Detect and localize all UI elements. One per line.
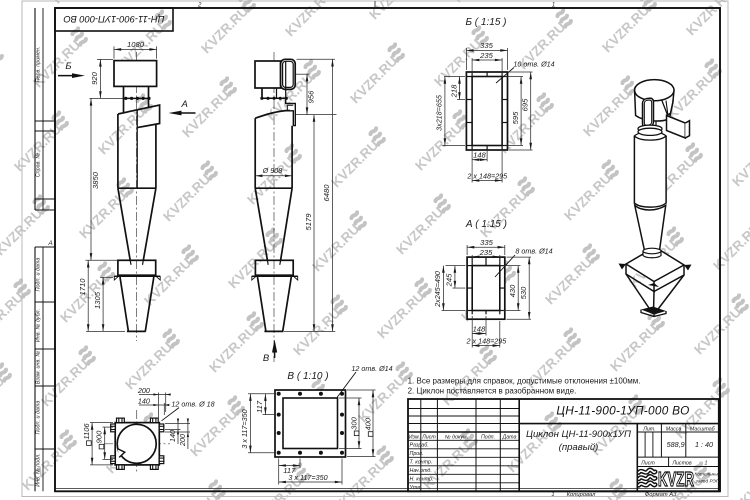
svg-text:3 х 117=350: 3 х 117=350 [288, 473, 327, 482]
svg-text:2х245=490: 2х245=490 [433, 271, 442, 308]
svg-text:Формат А3: Формат А3 [645, 492, 677, 498]
svg-text:3850: 3850 [91, 171, 100, 189]
svg-text:1: 1 [705, 460, 708, 466]
svg-text:1. Все размеры для справок, до: 1. Все размеры для справок, допустимые о… [408, 377, 641, 386]
svg-text:335: 335 [480, 41, 493, 50]
svg-text:А: А [47, 240, 52, 247]
svg-text:400: 400 [364, 417, 373, 430]
svg-text:8 отв. Ø14: 8 отв. Ø14 [515, 246, 552, 255]
svg-text:Лит.: Лит. [642, 427, 655, 433]
svg-text:Масса: Масса [666, 427, 682, 433]
svg-text:Лист: Лист [640, 460, 655, 466]
svg-text:2: 2 [197, 1, 202, 8]
svg-text:Копировал: Копировал [567, 492, 597, 498]
svg-text:Инв. № подл.: Инв. № подл. [35, 453, 41, 486]
svg-text:117: 117 [255, 400, 264, 413]
svg-text:695: 695 [521, 98, 530, 111]
svg-text:Листов: Листов [671, 460, 692, 466]
svg-text:Б: Б [65, 61, 71, 72]
svg-text:Б ( 1:15 ): Б ( 1:15 ) [466, 17, 507, 28]
svg-text:200: 200 [137, 386, 150, 395]
svg-text:В ( 1:10 ): В ( 1:10 ) [287, 371, 328, 382]
svg-text:Изм.: Изм. [409, 434, 420, 440]
svg-text:148: 148 [473, 151, 486, 160]
svg-text:Т. контр.: Т. контр. [410, 460, 433, 466]
svg-text:Ø 908: Ø 908 [262, 166, 283, 175]
svg-text:ЦН-11-900-1УП-000 ВО: ЦН-11-900-1УП-000 ВО [63, 14, 165, 25]
svg-text:1080: 1080 [127, 40, 145, 49]
svg-text:12 отв. Ø 18: 12 отв. Ø 18 [171, 400, 214, 409]
svg-text:430: 430 [508, 284, 517, 297]
svg-text:Дата: Дата [502, 434, 517, 440]
svg-text:Котельный: Котельный [694, 471, 720, 478]
svg-text:Подп. и дата: Подп. и дата [35, 258, 41, 292]
svg-text:588,9: 588,9 [667, 440, 685, 449]
svg-text:Пров.: Пров. [410, 451, 424, 457]
svg-text:2 х 148=295: 2 х 148=295 [466, 172, 508, 181]
svg-text:1: 1 [551, 492, 554, 498]
svg-text:1305: 1305 [93, 291, 102, 309]
svg-text:Утв.: Утв. [410, 485, 422, 491]
svg-text:1: 1 [552, 1, 555, 8]
svg-text:956: 956 [306, 90, 315, 103]
svg-text:2. Циклон поставляется в разоб: 2. Циклон поставляется в разобранном вид… [408, 387, 577, 396]
svg-text:А: А [181, 99, 188, 110]
svg-text:Инв. № дубл.: Инв. № дубл. [35, 309, 41, 342]
svg-text:Нач.отд.: Нач.отд. [410, 468, 432, 474]
svg-text:ЦН-11-900-1УП-000 ВО: ЦН-11-900-1УП-000 ВО [556, 404, 689, 418]
svg-text:530: 530 [519, 286, 528, 299]
svg-text:(правый): (правый) [559, 442, 599, 453]
svg-text:А ( 1:15 ): А ( 1:15 ) [465, 219, 507, 230]
svg-text:Справ. №: Справ. № [35, 153, 41, 178]
svg-text:В: В [263, 353, 270, 364]
svg-text:завод РЭП: завод РЭП [695, 479, 720, 485]
svg-text:235: 235 [479, 51, 493, 60]
svg-text:920: 920 [90, 71, 99, 84]
svg-text:3х218=655: 3х218=655 [435, 94, 444, 131]
svg-text:245: 245 [445, 273, 454, 287]
svg-text:6480: 6480 [322, 184, 331, 202]
svg-text:Масштаб: Масштаб [690, 427, 716, 433]
svg-text:148: 148 [473, 325, 486, 334]
svg-text:5179: 5179 [304, 213, 313, 231]
svg-text:1710: 1710 [78, 278, 87, 296]
svg-text:Лист: Лист [421, 434, 436, 440]
svg-text:KVZR: KVZR [658, 469, 694, 491]
svg-text:Перв. примен.: Перв. примен. [35, 47, 41, 83]
svg-text:595: 595 [511, 111, 520, 124]
svg-text:2 х 148=295: 2 х 148=295 [466, 337, 508, 346]
svg-text:1106: 1106 [82, 423, 91, 440]
svg-text:140: 140 [138, 396, 150, 405]
svg-text:Циклон ЦН-11-900х1УП: Циклон ЦН-11-900х1УП [526, 429, 631, 440]
svg-text:335: 335 [480, 238, 493, 247]
svg-text:218: 218 [449, 84, 458, 98]
svg-text:900: 900 [95, 430, 104, 443]
svg-text:10 отв. Ø14: 10 отв. Ø14 [513, 60, 554, 69]
svg-text:3 х 117=350: 3 х 117=350 [240, 409, 249, 448]
svg-text:1 : 40: 1 : 40 [695, 440, 713, 449]
svg-text:200: 200 [178, 434, 187, 447]
svg-text:235: 235 [479, 248, 493, 257]
svg-text:Н. контр.: Н. контр. [410, 477, 434, 483]
svg-text:Подп.: Подп. [481, 434, 495, 440]
svg-text:12 отв. Ø14: 12 отв. Ø14 [351, 364, 392, 373]
svg-text:Разраб.: Разраб. [410, 443, 429, 449]
svg-text:№ докум.: № докум. [445, 434, 468, 440]
svg-text:300: 300 [350, 416, 359, 429]
svg-text:Взам. инв. №: Взам. инв. № [35, 351, 41, 385]
svg-text:Подп. и дата: Подп. и дата [35, 401, 41, 435]
